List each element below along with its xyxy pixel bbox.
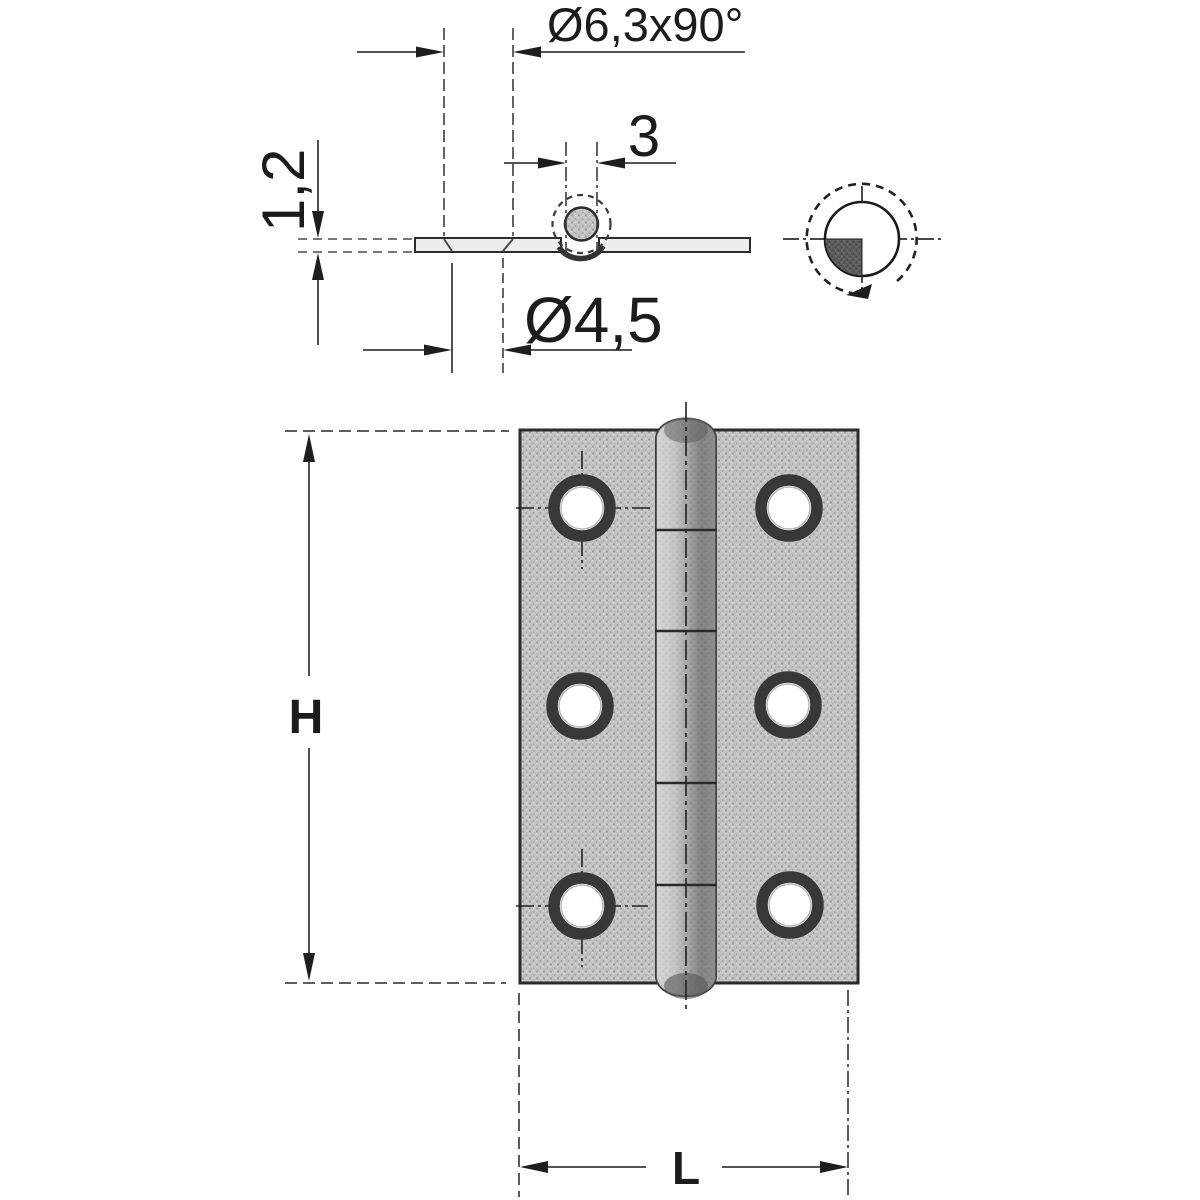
arrowhead [820,1161,848,1173]
arrowhead [303,434,315,462]
pin-diameter-label: 3 [628,104,660,169]
length-dimension-label: L [672,1142,700,1194]
hole-diameter-label: Ø4,5 [524,284,663,356]
pin-detail-filled-quadrant [825,239,862,276]
arrowhead [303,953,315,981]
arrowhead [312,253,324,280]
dimension-hole-diameter: Ø4,5 [363,258,663,373]
hole-middle-right [760,677,816,733]
arrowhead [538,158,566,169]
dimension-leaf-thickness: 1,2 [250,140,324,345]
hole-bottom-right [762,877,818,933]
leaf-thickness-label: 1,2 [250,149,317,232]
arrowhead [424,345,452,356]
dimension-height: H [285,431,509,983]
leaf-centerline-extensions [298,239,414,252]
hinge-technical-drawing: Ø6,3x90° 3 1,2 Ø4,5 [0,0,1200,1200]
left-leaf-section [415,238,561,252]
hole-middle-left [552,678,608,734]
arrowhead [597,158,625,169]
front-view [516,402,858,1014]
arrowhead [416,47,444,58]
dimension-countersink: Ø6,3x90° [357,0,745,236]
drawing-canvas: Ø6,3x90° 3 1,2 Ø4,5 [0,0,1200,1200]
arrowhead [513,47,541,58]
side-section-view [298,195,750,259]
hole-top-right [761,480,817,536]
right-leaf-section [599,238,750,252]
dimension-length: L [519,990,848,1197]
pin-section-circle [565,208,598,241]
pin-detail-view [783,184,942,299]
height-dimension-label: H [289,691,324,744]
arrowhead [520,1161,548,1173]
countersink-dimension-label: Ø6,3x90° [547,0,743,51]
